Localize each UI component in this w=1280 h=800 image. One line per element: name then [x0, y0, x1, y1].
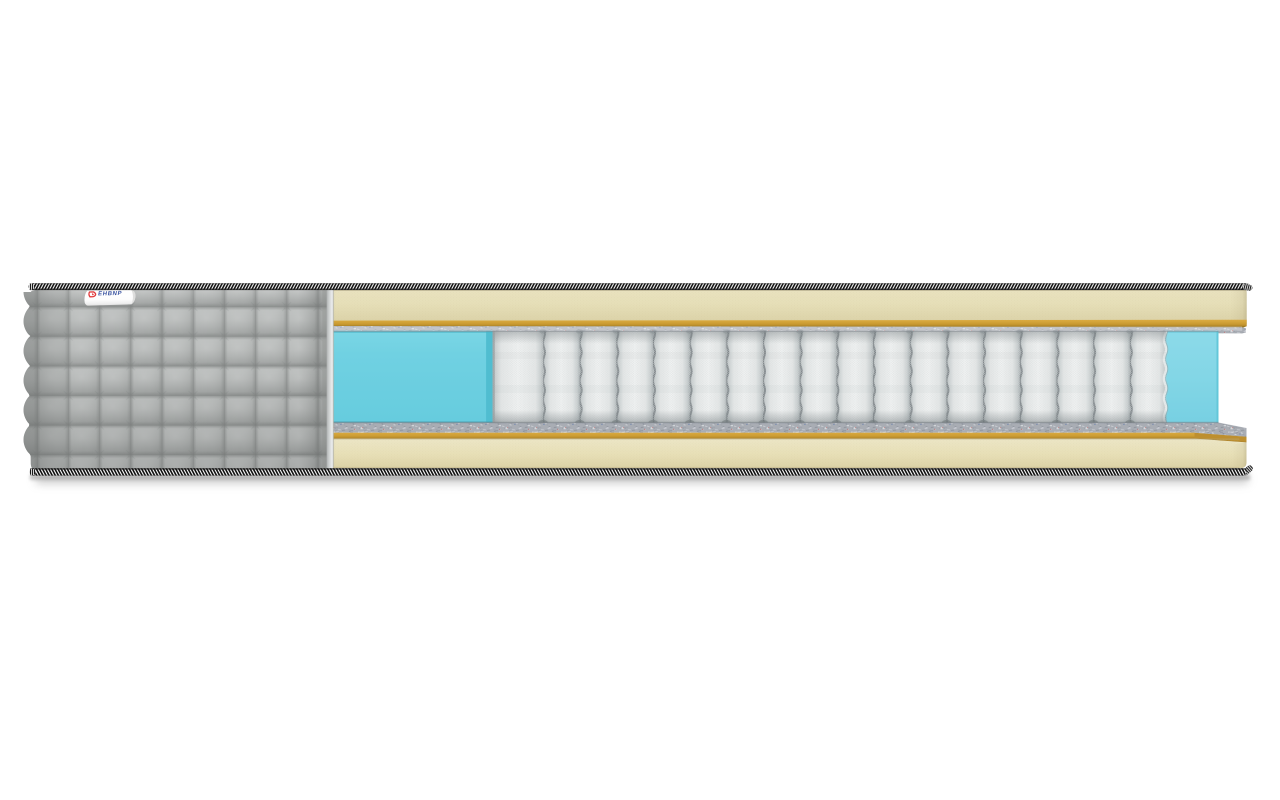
svg-text:EHBNP: EHBNP	[98, 291, 122, 298]
